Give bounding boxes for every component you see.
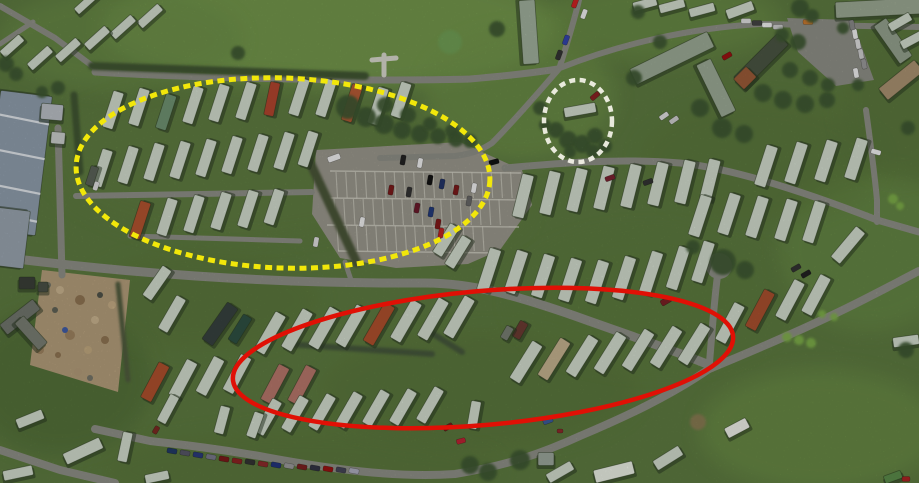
aerial-photo [0,0,919,483]
grain-layer [0,0,919,483]
photo-grain [0,0,919,483]
scene-root [0,0,919,483]
aerial-photo-canvas [0,0,919,483]
